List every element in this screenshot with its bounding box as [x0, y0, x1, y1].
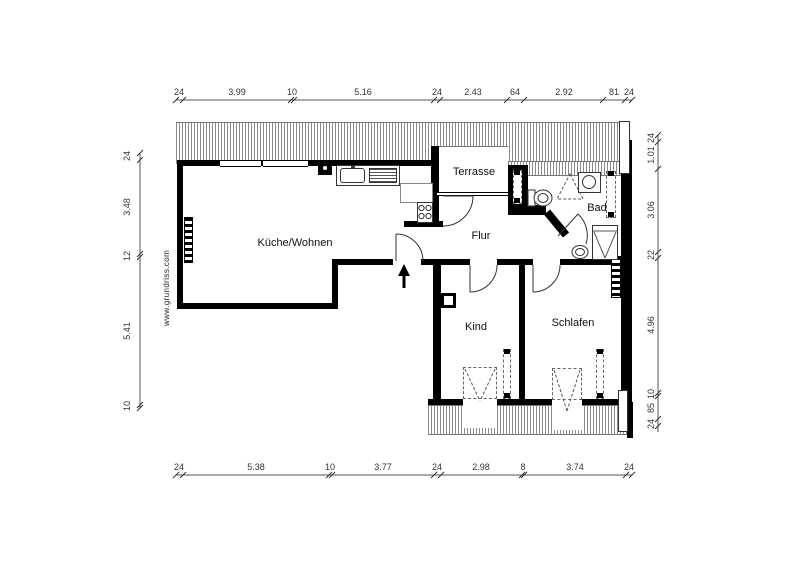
dim-top-0: 24 [159, 86, 199, 98]
dim-right-1: 1.01 [645, 135, 657, 175]
dim-left-3: 5.41 [121, 311, 133, 351]
dim-top-5: 2.43 [453, 86, 493, 98]
dim-bottom-7: 3.74 [555, 461, 595, 473]
dim-top-4: 24 [417, 86, 457, 98]
floor-plan-canvas: Küche/Wohnen Terrasse Flur Bad Kind Schl… [0, 0, 800, 566]
dim-left-1: 3.48 [121, 187, 133, 227]
dim-top-7: 2.92 [544, 86, 584, 98]
dim-bottom-8: 24 [609, 461, 649, 473]
washbasin-bowl-icon [583, 176, 596, 189]
dim-bottom-4: 24 [417, 461, 457, 473]
dim-bottom-3: 3.77 [363, 461, 403, 473]
dim-bottom-5: 2.98 [461, 461, 501, 473]
roof-window-bad [557, 174, 583, 199]
dim-bottom-0: 24 [159, 461, 199, 473]
washbasin-small-icon [572, 246, 588, 259]
room-label-schlafen: Schlafen [552, 317, 595, 329]
room-label-flur: Flur [472, 230, 491, 242]
dim-left-0: 24 [121, 136, 133, 176]
dim-left-4: 10 [121, 386, 133, 426]
entry-door [396, 234, 423, 261]
dormer-schlafen-vlines [554, 370, 580, 411]
dim-bottom-6: 8 [503, 461, 543, 473]
dim-top-6: 64 [495, 86, 535, 98]
terrasse-door [443, 196, 473, 226]
room-label-kueche: Küche/Wohnen [257, 237, 332, 249]
entry-arrow-icon [398, 264, 410, 288]
wall-diagonal-bad [547, 212, 566, 235]
dormer-kind-vlines [465, 369, 495, 401]
room-label-kind: Kind [465, 321, 487, 333]
schlafen-door [533, 265, 560, 292]
dim-top-2: 10 [272, 86, 312, 98]
toilet-icon [528, 190, 552, 206]
dim-right-7: 24 [645, 404, 657, 444]
dim-right-4: 4.96 [645, 305, 657, 345]
dim-right-2: 3.06 [645, 190, 657, 230]
kind-door [470, 265, 497, 292]
room-label-bad: Bad [587, 202, 607, 214]
stove-burners-icon [419, 205, 431, 218]
shower-icon [593, 231, 617, 258]
dim-right-3: 22 [645, 235, 657, 275]
dimension-lines [140, 100, 658, 475]
dim-top-1: 3.99 [217, 86, 257, 98]
dim-left-2: 12 [121, 236, 133, 276]
dim-top-9: 24 [609, 86, 649, 98]
sink-tap-icon [351, 165, 355, 169]
linework-overlay [0, 0, 800, 566]
dim-top-3: 5.16 [343, 86, 383, 98]
dim-bottom-1: 5.38 [236, 461, 276, 473]
dim-bottom-2: 10 [310, 461, 350, 473]
room-label-terrasse: Terrasse [453, 166, 495, 178]
watermark: www.grundriss.com [162, 250, 171, 326]
